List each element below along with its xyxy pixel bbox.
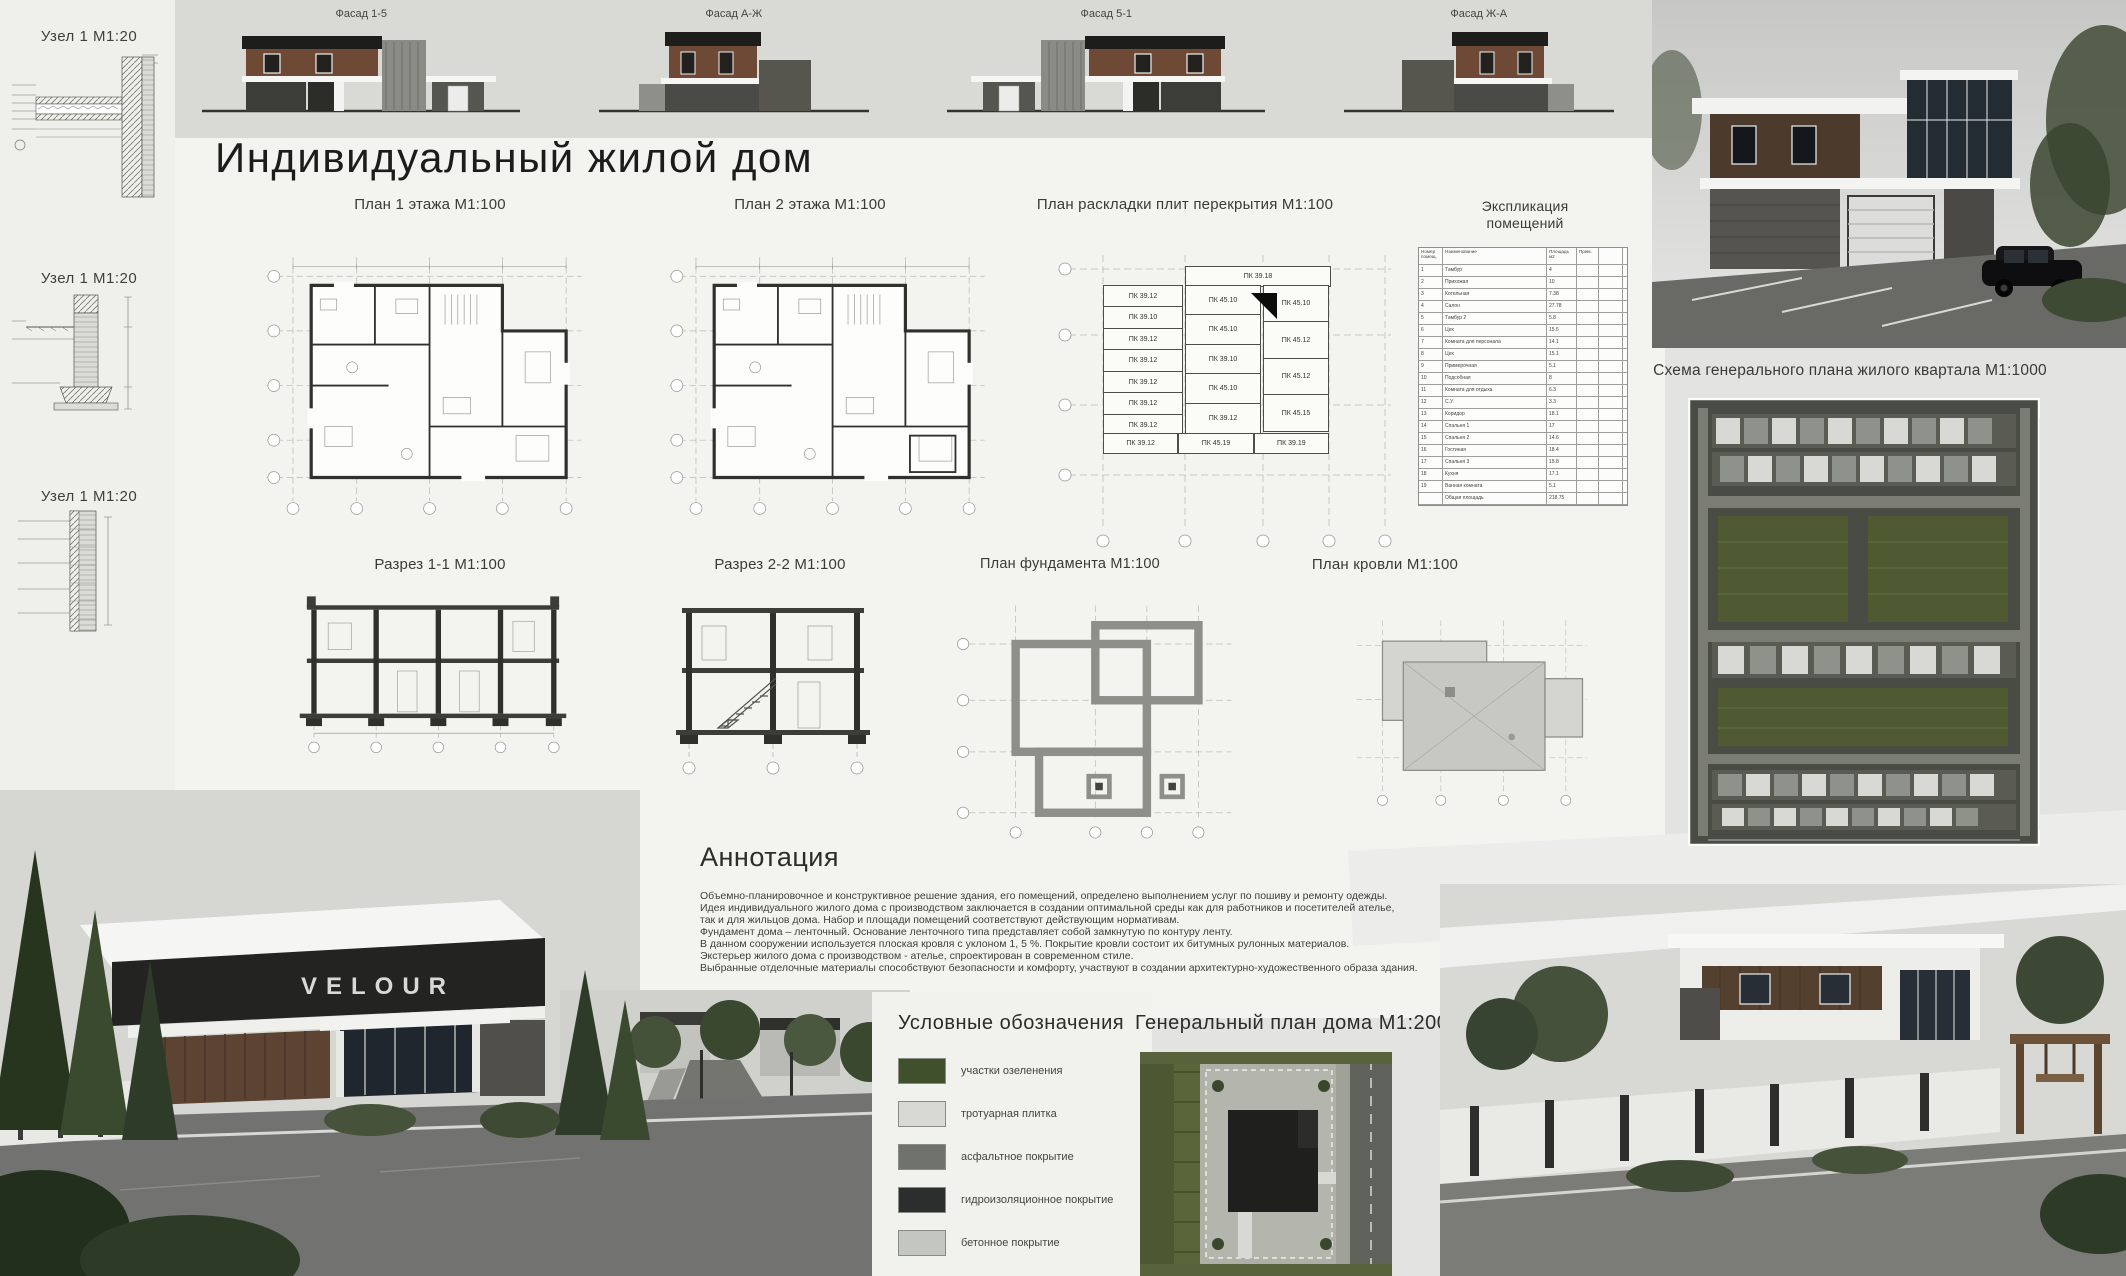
room-area: 218.75 [1547,493,1577,504]
roof-plan-label: План кровли М1:100 [1290,556,1480,573]
room-note [1577,433,1599,444]
room-number: 17 [1419,457,1443,468]
room-name: Тамбур [1443,265,1547,276]
slab-label: ПК 45.15 [1263,394,1329,432]
room-name: Общая площадь [1443,493,1547,504]
table-row: 8 Цех 15.1 [1419,349,1627,361]
slab-label: ПК 39.12 [1103,285,1183,308]
node-detail-1-drawing [8,45,168,215]
render-top-right [1652,0,2126,348]
room-area: 5.8 [1547,313,1577,324]
room-number: 19 [1419,481,1443,492]
facade-band: Фасад 1-5 Фасад А-Ж Фасад 5-1 Фасад Ж-А [175,0,1665,138]
room-area: 3.3 [1547,397,1577,408]
legend-swatch [898,1058,946,1084]
explication-title-line2: помещений [1486,215,1563,231]
slab-label: ПК 39.12 [1103,349,1183,372]
room-area: 18.1 [1547,409,1577,420]
room-number: 13 [1419,409,1443,420]
legend-item: бетонное покрытие [898,1230,1148,1256]
table-row: Общая площадь 218.75 [1419,493,1627,505]
room-name: Примерочная [1443,361,1547,372]
siteplan-drawing [1140,1052,1392,1276]
room-note [1577,457,1599,468]
room-name: Спальня 3 [1443,457,1547,468]
slab-label: ПК 45.10 [1185,314,1261,345]
legend-swatch [898,1230,946,1256]
explication-header-row: Номер помещ. Наименование Площадь м2 При… [1419,248,1627,265]
facade-zh-a-drawing [1314,20,1644,120]
room-number: 5 [1419,313,1443,324]
room-name: Комната для отдыха [1443,385,1547,396]
room-area: 5.1 [1547,481,1577,492]
render-house-2 [1668,934,2004,1040]
room-name: Комната для персонала [1443,337,1547,348]
room-note [1577,313,1599,324]
table-row: 7 Комната для персонала 14.1 [1419,337,1627,349]
room-name: С.У. [1443,397,1547,408]
legend-item: асфальтное покрытие [898,1144,1148,1170]
row-spacer [1599,433,1623,444]
facade-a-zh-drawing [569,20,899,120]
explication-table: Номер помещ. Наименование Площадь м2 При… [1418,247,1628,506]
room-number: 9 [1419,361,1443,372]
explication-header: Площадь м2 [1547,248,1577,266]
node-detail-1-label: Узел 1 М1:20 [8,28,170,45]
table-row: 4 Салон 27.78 [1419,301,1627,313]
render-bottom-right [1440,884,2126,1276]
row-spacer [1599,349,1623,360]
explication-header: Номер помещ. [1419,248,1443,266]
explication-title: Экспликация помещений [1425,198,1625,232]
room-area: 4 [1547,265,1577,276]
explication-header: Наименование [1443,248,1547,266]
room-note [1577,373,1599,384]
room-name: Котельная [1443,289,1547,300]
room-note [1577,361,1599,372]
room-note [1577,385,1599,396]
facade-5-1-label: Фасад 5-1 [1081,8,1132,20]
room-name: Гостиная [1443,445,1547,456]
legend-swatch [898,1187,946,1213]
table-row: 15 Спальня 2 14.6 [1419,433,1627,445]
legend-swatch [898,1144,946,1170]
table-row: 12 С.У. 3.3 [1419,397,1627,409]
row-spacer [1599,409,1623,420]
slab-label: ПК 39.12 [1103,392,1183,415]
row-spacer [1599,313,1623,324]
legend-item: участки озеленения [898,1058,1148,1084]
room-note [1577,265,1599,276]
row-spacer [1599,445,1623,456]
row-spacer [1599,493,1623,504]
facade-a-zh: Фасад А-Ж [548,0,921,138]
room-number: 7 [1419,337,1443,348]
room-name: Спальня 1 [1443,421,1547,432]
room-note [1577,277,1599,288]
row-spacer [1599,457,1623,468]
room-area: 5.1 [1547,361,1577,372]
table-row: 1 Тамбур 4 [1419,265,1627,277]
masterplan-label: Схема генерального плана жилого квартала… [1640,362,2060,380]
node-detail-3-drawing [8,505,168,645]
room-number: 8 [1419,349,1443,360]
page-title: Индивидуальный жилой дом [215,134,813,182]
slab-plan: ПК 39.18 ПК 39.12ПК 39.10ПК 39.12ПК 39.1… [1055,245,1395,555]
facade-a-zh-label: Фасад А-Ж [705,8,762,20]
room-area: 17.1 [1547,469,1577,480]
table-row: 10 Подсобная 8 [1419,373,1627,385]
explication-rows: 1 Тамбур 4 2 Прихожая 10 3 Котельная 7.3… [1419,265,1627,505]
room-name: Ванная комната [1443,481,1547,492]
foundation-plan-label: План фундамента М1:100 [970,556,1170,572]
room-name: Прихожая [1443,277,1547,288]
room-number: 2 [1419,277,1443,288]
node-detail-2-drawing [8,287,168,437]
room-number: 10 [1419,373,1443,384]
slab-label-top: ПК 39.18 [1185,266,1331,287]
row-spacer [1599,265,1623,276]
facade-1-5: Фасад 1-5 [175,0,548,138]
room-area: 15.5 [1547,325,1577,336]
legend-label: бетонное покрытие [961,1237,1060,1249]
room-note [1577,397,1599,408]
room-name: Цех [1443,349,1547,360]
plan1-drawing [252,230,598,532]
room-note [1577,421,1599,432]
table-row: 11 Комната для отдыха 6.3 [1419,385,1627,397]
table-row: 6 Цех 15.5 [1419,325,1627,337]
slab-column-a: ПК 39.12ПК 39.10ПК 39.12ПК 39.12ПК 39.12… [1103,286,1183,437]
room-number: 1 [1419,265,1443,276]
room-area: 6.3 [1547,385,1577,396]
table-row: 18 Кухня 17.1 [1419,469,1627,481]
room-name: Подсобная [1443,373,1547,384]
slab-row-bottom: ПК 39.12ПК 45.19ПК 39.19 [1103,434,1329,454]
legend-title: Условные обозначения [898,1012,1124,1035]
room-number: 6 [1419,325,1443,336]
masterplan-drawing [1688,398,2040,846]
table-row: 19 Ванная комната 5.1 [1419,481,1627,493]
room-number: 15 [1419,433,1443,444]
row-spacer [1599,301,1623,312]
slab-label: ПК 39.19 [1254,433,1329,454]
room-number: 12 [1419,397,1443,408]
building-sign: VELOUR [268,973,488,1001]
slab-column-b: ПК 45.10ПК 45.10ПК 39.10ПК 45.10ПК 39.12 [1185,286,1261,434]
slab-label: ПК 39.10 [1185,344,1261,375]
legend-label: участки озеленения [961,1065,1062,1077]
room-number: 16 [1419,445,1443,456]
presentation-board: Узел 1 М1:20 Узел 1 М1:20 [0,0,2126,1276]
legend-swatch [898,1101,946,1127]
room-area: 27.78 [1547,301,1577,312]
row-spacer [1599,421,1623,432]
slab-label: ПК 39.12 [1103,433,1178,454]
slab-label: ПК 45.12 [1263,321,1329,359]
explication-title-line1: Экспликация [1482,198,1569,214]
foundation-plan-drawing [950,588,1250,850]
explication-header-spacer [1599,248,1623,266]
slab-plan-label: План раскладки плит перекрытия М1:100 [1020,196,1350,213]
roof-plan-drawing [1345,592,1595,832]
room-note [1577,337,1599,348]
facade-zh-a: Фасад Ж-А [1293,0,1666,138]
legend-label: асфальтное покрытие [961,1151,1074,1163]
table-row: 14 Спальня 1 17 [1419,421,1627,433]
table-row: 3 Котельная 7.38 [1419,289,1627,301]
row-spacer [1599,481,1623,492]
siteplan-label: Генеральный план дома М1:200 [1135,1012,1465,1035]
node-detail-2-label: Узел 1 М1:20 [8,270,170,287]
room-note [1577,289,1599,300]
row-spacer [1599,397,1623,408]
slab-label: ПК 39.12 [1103,328,1183,351]
slab-label: ПК 45.10 [1185,285,1261,316]
room-area: 15.8 [1547,457,1577,468]
room-name: Тамбур 2 [1443,313,1547,324]
legend: участки озеленения тротуарная плитка асф… [898,1058,1148,1273]
table-row: 16 Гостиная 18.4 [1419,445,1627,457]
room-note [1577,325,1599,336]
room-name: Спальня 2 [1443,433,1547,444]
room-number: 14 [1419,421,1443,432]
row-spacer [1599,325,1623,336]
legend-item: гидроизоляционное покрытие [898,1187,1148,1213]
room-name: Салон [1443,301,1547,312]
row-spacer [1599,337,1623,348]
facade-5-1: Фасад 5-1 [920,0,1293,138]
room-area: 17 [1547,421,1577,432]
room-area: 7.38 [1547,289,1577,300]
room-name: Цех [1443,325,1547,336]
room-note [1577,469,1599,480]
room-area: 18.4 [1547,445,1577,456]
room-area: 14.6 [1547,433,1577,444]
explication-header: Прим. [1577,248,1599,266]
room-number: 3 [1419,289,1443,300]
render-house [1692,70,2020,269]
plan2-label: План 2 этажа М1:100 [710,196,910,213]
room-number: 4 [1419,301,1443,312]
room-area: 14.1 [1547,337,1577,348]
legend-label: тротуарная плитка [961,1108,1057,1120]
slab-label: ПК 45.10 [1185,373,1261,404]
plan1-label: План 1 этажа М1:100 [330,196,530,213]
room-note [1577,445,1599,456]
plan2-drawing [655,230,1001,532]
table-row: 2 Прихожая 10 [1419,277,1627,289]
room-note [1577,409,1599,420]
table-row: 13 Коридор 18.1 [1419,409,1627,421]
slab-section-mark [1251,293,1277,319]
room-name: Кухня [1443,469,1547,480]
slab-label: ПК 39.12 [1185,403,1261,434]
room-area: 10 [1547,277,1577,288]
table-row: 5 Тамбур 2 5.8 [1419,313,1627,325]
legend-item: тротуарная плитка [898,1101,1148,1127]
slab-label: ПК 39.12 [1103,371,1183,394]
room-area: 15.1 [1547,349,1577,360]
facade-zh-a-label: Фасад Ж-А [1450,8,1507,20]
section-2-2-label: Разрез 2-2 М1:100 [690,556,870,573]
render-bottom-left [0,790,910,1276]
room-number: 11 [1419,385,1443,396]
row-spacer [1599,361,1623,372]
row-spacer [1599,373,1623,384]
slab-label: ПК 45.12 [1263,358,1329,396]
section-1-1-drawing [282,582,584,760]
row-spacer [1599,289,1623,300]
section-1-1-label: Разрез 1-1 М1:100 [340,556,540,573]
row-spacer [1599,469,1623,480]
room-number: 18 [1419,469,1443,480]
room-name: Коридор [1443,409,1547,420]
table-row: 17 Спальня 3 15.8 [1419,457,1627,469]
slab-label: ПК 39.10 [1103,306,1183,329]
slab-label: ПК 45.19 [1178,433,1253,454]
facade-1-5-drawing [196,20,526,120]
facade-1-5-label: Фасад 1-5 [336,8,387,20]
room-note [1577,301,1599,312]
room-note [1577,493,1599,504]
row-spacer [1599,385,1623,396]
room-note [1577,481,1599,492]
node-detail-3-label: Узел 1 М1:20 [8,488,170,505]
node-details-column: Узел 1 М1:20 Узел 1 М1:20 [8,28,170,650]
facade-5-1-drawing [941,20,1271,120]
room-number [1419,493,1443,504]
room-note [1577,349,1599,360]
table-row: 9 Примерочная 5.1 [1419,361,1627,373]
row-spacer [1599,277,1623,288]
section-2-2-drawing [658,582,888,782]
legend-label: гидроизоляционное покрытие [961,1194,1113,1206]
room-area: 8 [1547,373,1577,384]
